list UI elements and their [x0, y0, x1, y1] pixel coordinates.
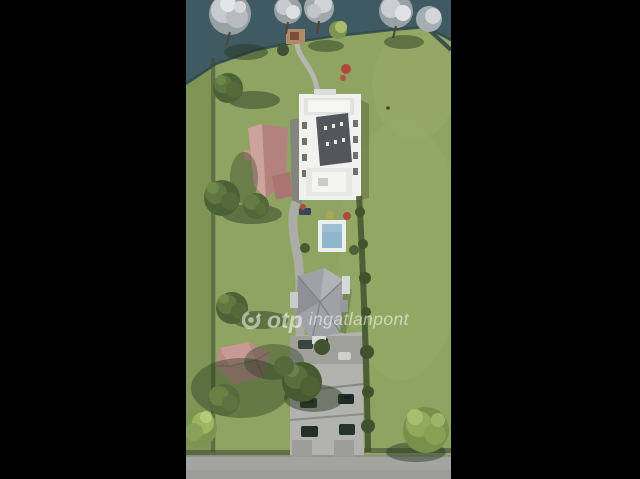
property-rendering: otp ingatlanpont — [186, 0, 451, 479]
rendering-canvas — [186, 0, 451, 479]
swimming-pool — [318, 220, 346, 252]
boat-dock — [286, 29, 305, 44]
main-apartment-building — [299, 89, 369, 200]
letterboxed-photo: otp ingatlanpont — [0, 0, 640, 479]
red-bush — [300, 204, 306, 210]
